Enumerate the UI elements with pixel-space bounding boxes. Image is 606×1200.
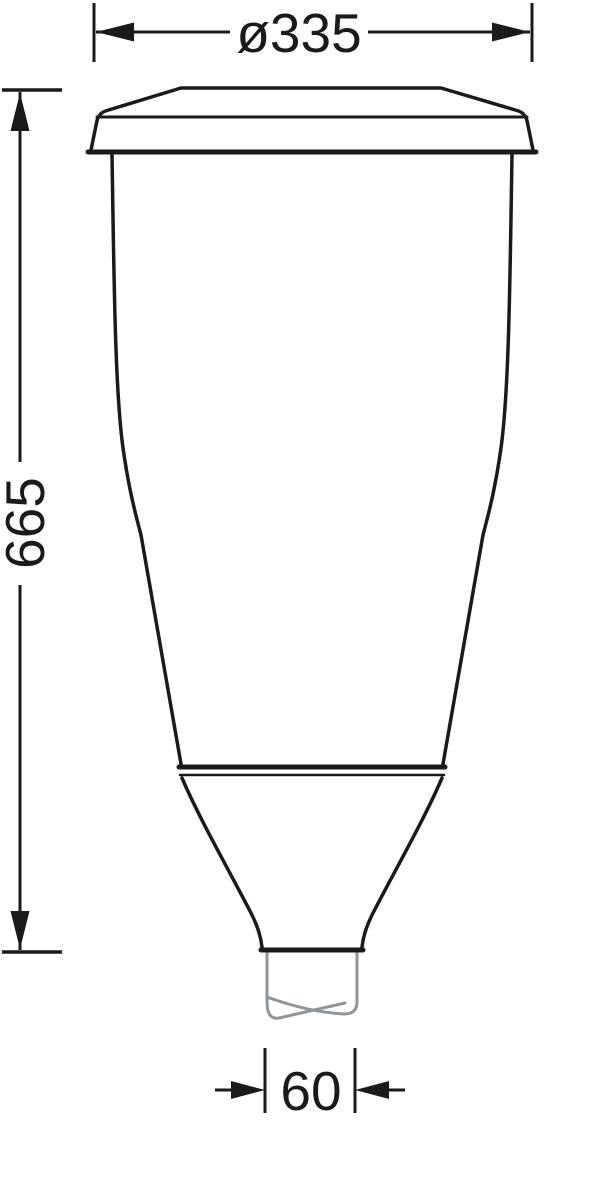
body-right-profile — [443, 154, 512, 764]
top-arrowhead-left — [96, 23, 134, 42]
bottom-diameter-label: 60 — [280, 1060, 341, 1122]
luminaire-outline — [88, 88, 536, 950]
drawing-canvas: ø335 665 60 — [0, 0, 606, 1200]
pole-break-symbol — [267, 952, 357, 1018]
bottom-arrowhead-right — [355, 1081, 389, 1099]
bottom-arrowhead-left — [231, 1081, 265, 1099]
body-left-profile — [112, 154, 181, 764]
funnel-right-profile — [362, 778, 442, 947]
cap-dome-outline — [91, 88, 533, 150]
top-diameter-label: ø335 — [236, 2, 361, 64]
luminaire-technical-drawing: ø335 665 60 — [0, 0, 606, 1200]
height-arrowhead-up — [11, 93, 30, 131]
dimension-labels: ø335 665 60 — [0, 2, 362, 1122]
funnel-left-profile — [182, 778, 262, 947]
height-arrowhead-down — [11, 911, 30, 949]
top-arrowhead-right — [492, 23, 530, 42]
height-label: 665 — [0, 477, 56, 569]
